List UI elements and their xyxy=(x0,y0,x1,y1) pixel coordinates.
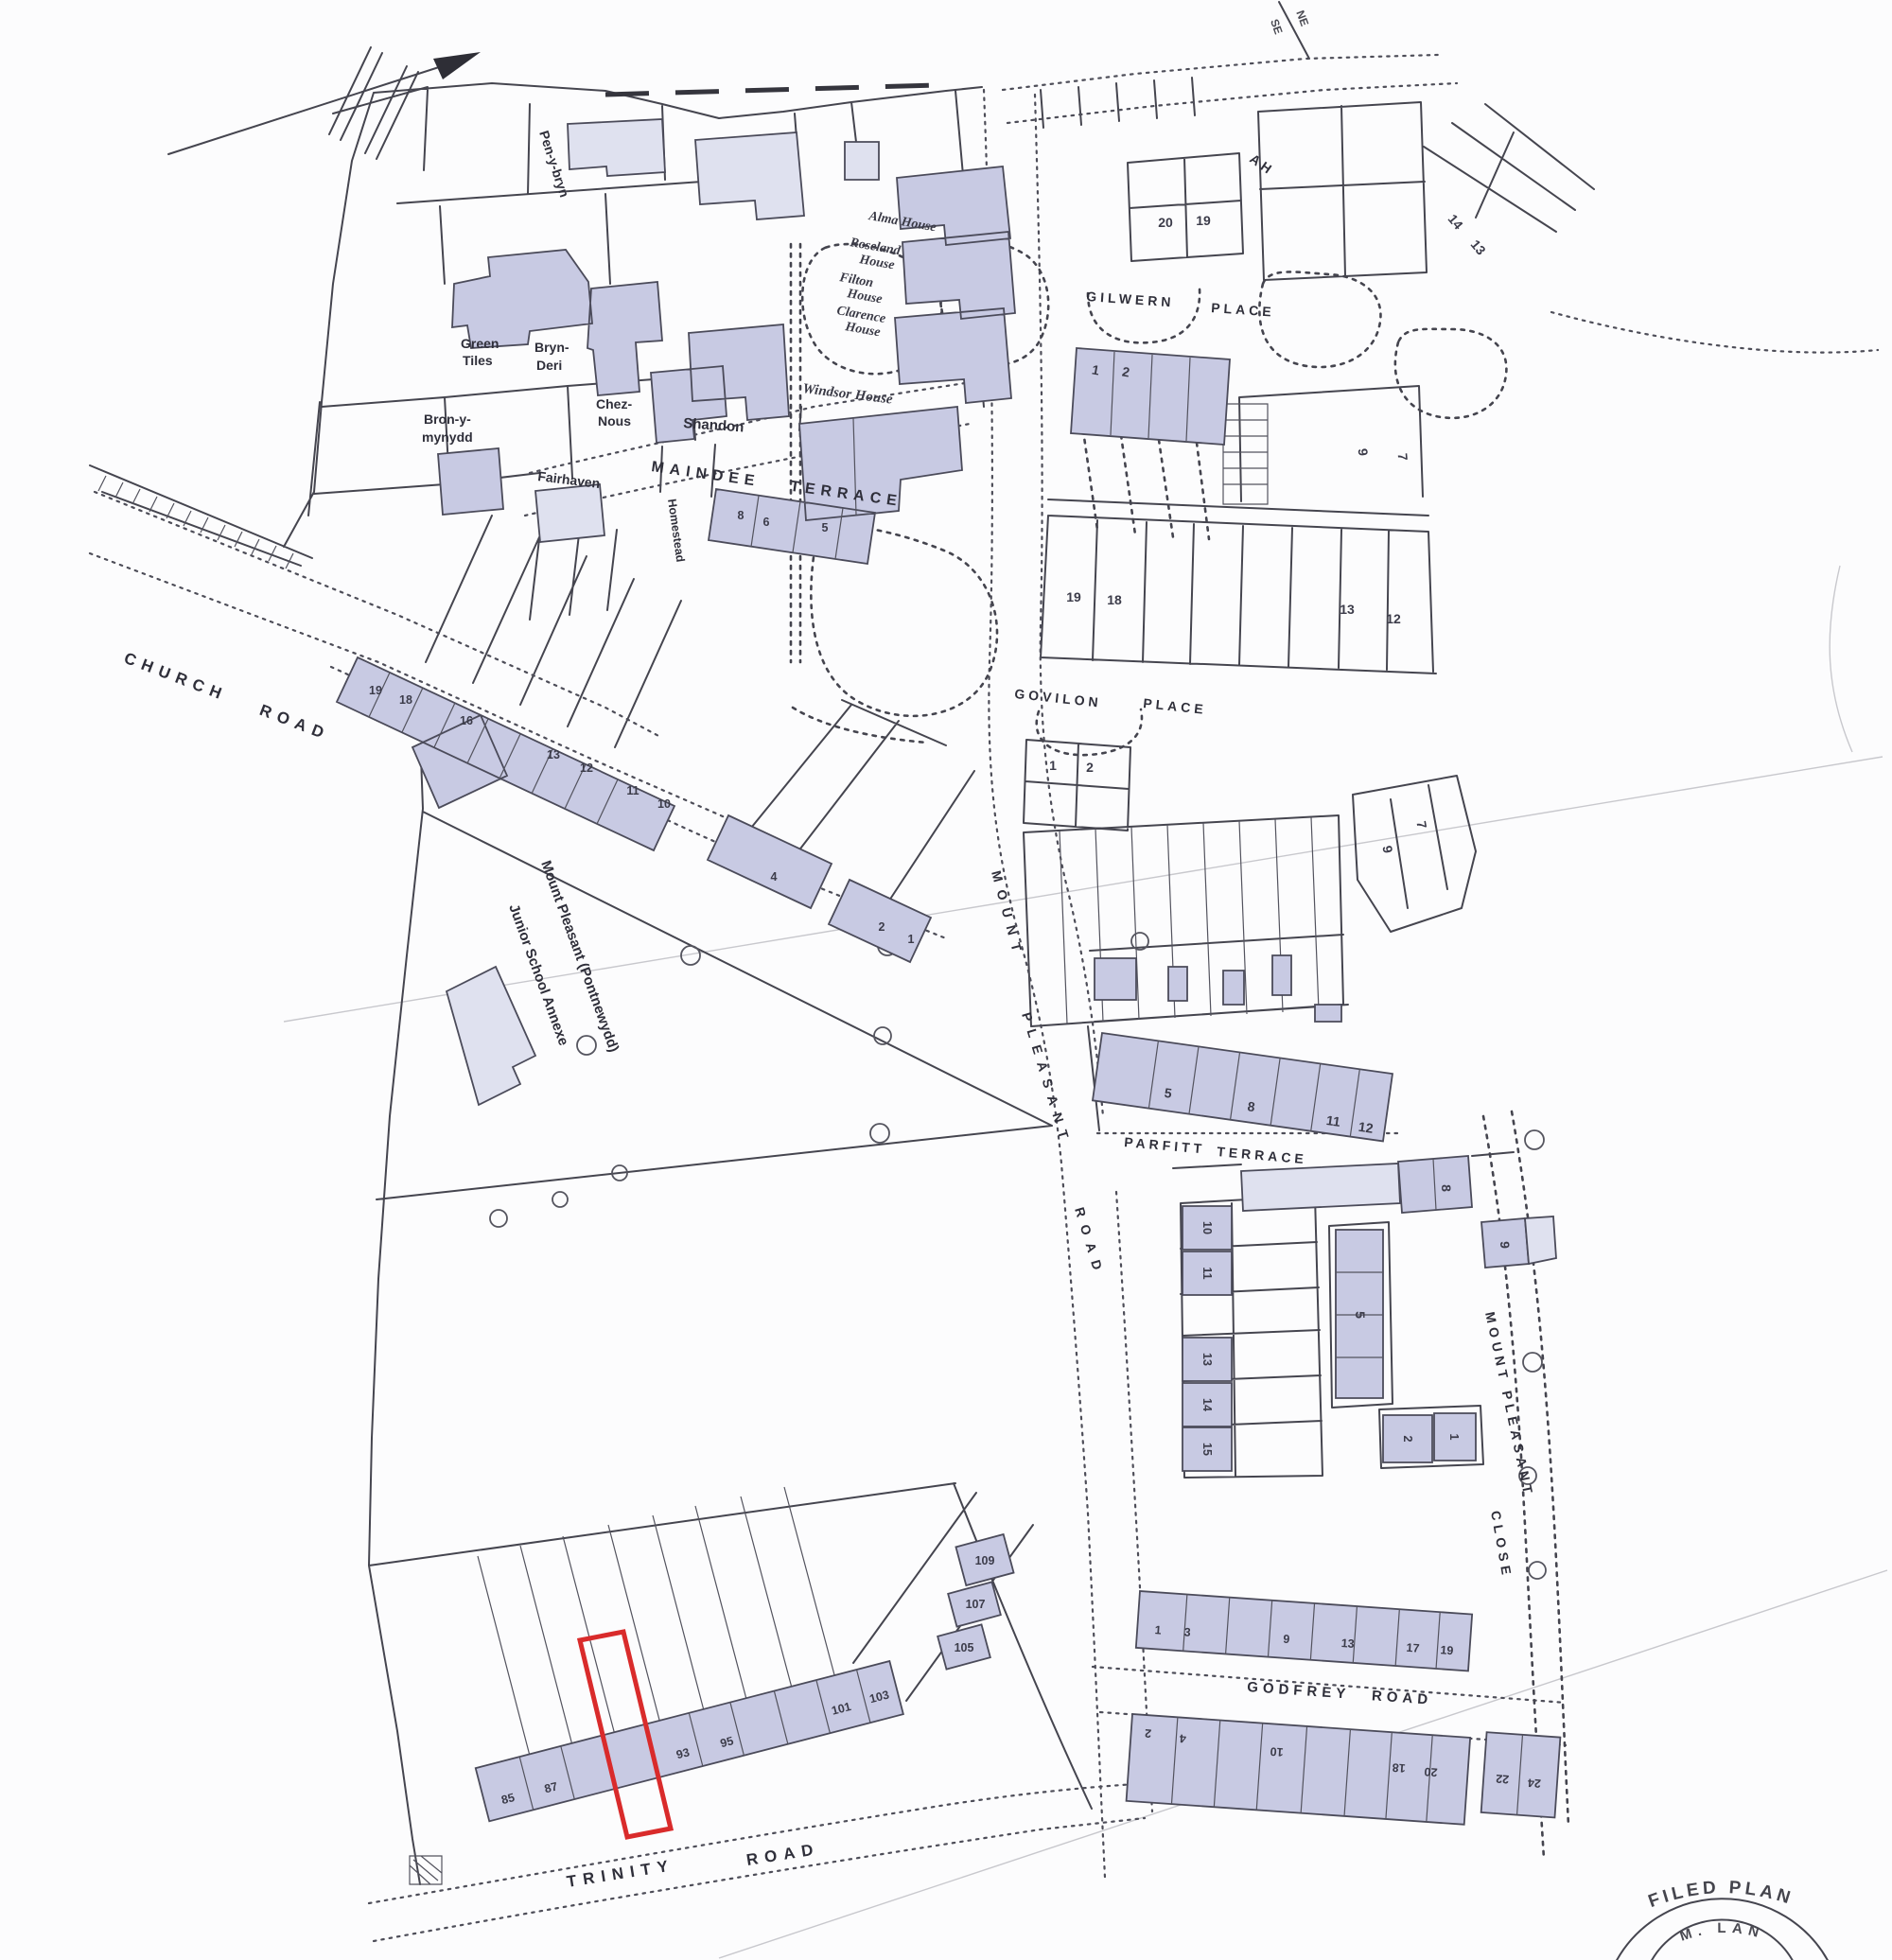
filed-plan-stamp: FILED PLAN xyxy=(1646,1878,1796,1912)
street-label-parfitt: PARFITT xyxy=(1124,1134,1206,1156)
plot-number: 107 xyxy=(966,1598,986,1611)
street-label-gilwern-place: PLACE xyxy=(1211,300,1275,320)
plot-number: 12 xyxy=(580,761,593,775)
parfitt-terrace-block: 5 8 11 12 xyxy=(1093,1033,1393,1141)
registry-stamp-text: M. LAN xyxy=(1678,1920,1766,1945)
plot-number: 109 xyxy=(975,1554,995,1567)
house-label-pen-y-bryn: Pen-y-bryn xyxy=(536,129,572,199)
plot-number: 6 xyxy=(763,516,770,529)
plot-number: 19 xyxy=(369,684,382,697)
map-svg: SE NE 5 8 11 12 1 3 xyxy=(0,0,1892,1960)
street-label-govilon: GOVILON xyxy=(1014,686,1103,710)
plot-number: 9 xyxy=(1356,447,1372,456)
plot-number: 9 xyxy=(1283,1633,1290,1646)
plot-number: 13 xyxy=(1340,1636,1355,1651)
garage-ladder-block xyxy=(1223,404,1268,504)
plot-number: 12 xyxy=(1358,1119,1375,1136)
plot-number: 11 xyxy=(1325,1112,1341,1129)
plot-number: 12 xyxy=(1386,611,1401,626)
house-label-bryn: Bryn- xyxy=(534,340,569,355)
plot-number: 8 xyxy=(738,509,745,522)
trinity-detached-houses: 105 107 109 xyxy=(937,1534,1013,1670)
plot-number: 19 xyxy=(1066,589,1081,604)
plot-number: 1 xyxy=(1154,1623,1162,1636)
plot-number: 2 xyxy=(1145,1726,1152,1740)
plot-number: 13 xyxy=(1468,236,1489,257)
plot-number: 20 xyxy=(1424,1765,1438,1779)
filed-plan-stamp-text: FILED PLAN xyxy=(1646,1878,1796,1912)
sheet-corner-marker: SE NE xyxy=(1268,2,1311,59)
plot-number: 4 xyxy=(771,870,778,884)
plot-number: 10 xyxy=(657,797,671,811)
registry-stamp: M. LAN xyxy=(1678,1920,1766,1945)
street-label-mpc: MOUNT PLEASANT xyxy=(1482,1310,1536,1499)
house-label-deri: Deri xyxy=(536,358,562,373)
plot-number: 13 xyxy=(547,748,560,761)
plot-number: 13 xyxy=(1200,1353,1214,1366)
plot-number: 10 xyxy=(1270,1744,1284,1759)
plot-number: 5 xyxy=(1353,1311,1368,1319)
plot-number: 5 xyxy=(822,521,829,534)
plot-number: 13 xyxy=(1340,602,1355,617)
plot-number: 19 xyxy=(1440,1643,1454,1657)
house-label-windsor: Windsor House xyxy=(802,381,894,408)
plot-number: 22 xyxy=(1496,1772,1510,1786)
plot-number: 105 xyxy=(955,1641,974,1654)
godfrey-north-terrace: 1 3 9 13 17 19 xyxy=(1136,1591,1472,1671)
street-label-mpc-close: CLOSE xyxy=(1488,1510,1515,1581)
plot-number: 15 xyxy=(1200,1443,1214,1456)
street-label-church-road: CHURCH ROAD xyxy=(122,649,333,744)
plot-number: 11 xyxy=(1200,1267,1214,1279)
land-registry-stamp: FILED PLAN M. LAN xyxy=(1613,1878,1831,1960)
plot-number: 19 xyxy=(1196,213,1211,228)
plot-number: 2 xyxy=(879,920,885,934)
street-label-mpr-mount: MOUNT xyxy=(989,869,1026,961)
plot-number: 1 xyxy=(908,933,915,946)
plot-number: 24 xyxy=(1527,1776,1541,1790)
plot-number: 3 xyxy=(1183,1625,1191,1638)
house-label-bron: Bron-y- xyxy=(424,411,471,427)
plot-number: 20 xyxy=(1158,215,1173,230)
plot-number: 7 xyxy=(1395,452,1411,461)
plot-number: 1 xyxy=(1049,758,1057,773)
street-label-gilwern: GILWERN xyxy=(1086,289,1175,309)
plot-number: 8 xyxy=(1439,1184,1454,1192)
house-label-chez: Chez- xyxy=(596,396,632,411)
street-label-godfrey-road: GODFREY ROAD xyxy=(1247,1679,1433,1708)
plot-number: 9 xyxy=(1379,845,1395,855)
plot-number: 11 xyxy=(626,784,639,797)
plot-number: 18 xyxy=(1392,1760,1406,1775)
plot-number: 1 xyxy=(1447,1434,1461,1441)
street-label-partial: AH xyxy=(1247,150,1277,178)
house-label-mynydd: mynydd xyxy=(422,429,473,445)
corner-se-label: SE xyxy=(1268,17,1286,36)
plot-number: 10 xyxy=(1200,1221,1214,1234)
house-label-homestead: Homestead xyxy=(665,498,687,563)
plot-number: 18 xyxy=(399,693,412,707)
top-boundary-dashes xyxy=(605,85,937,95)
house-label-tiles: Tiles xyxy=(463,353,493,368)
house-label-nous: Nous xyxy=(598,413,631,429)
plot-number: 16 xyxy=(460,714,473,727)
godfrey-south-terrace: 2 4 10 18 20 22 24 xyxy=(1127,1707,1561,1830)
plot-number: 9 xyxy=(1498,1241,1513,1249)
street-label-trinity: TRINITY xyxy=(566,1856,676,1891)
street-label-govilon-place: PLACE xyxy=(1143,695,1208,717)
house-label-filton-house: House xyxy=(845,287,883,306)
plot-number: 17 xyxy=(1406,1641,1420,1655)
corner-ne-label: NE xyxy=(1293,9,1311,27)
plot-number: 2 xyxy=(1401,1436,1414,1443)
street-label-mpr-road: ROAD xyxy=(1072,1205,1108,1280)
street-label-parfitt-terrace: TERRACE xyxy=(1217,1144,1308,1166)
school-label: Mount Pleasant (Pontnewydd) Junior Schoo… xyxy=(505,859,622,1055)
filed-plan-map: SE NE 5 8 11 12 1 3 xyxy=(0,0,1892,1960)
trinity-terrace: 85 87 93 95 101 103 xyxy=(476,1661,903,1821)
north-arrow-icon xyxy=(168,47,481,159)
house-label-green: Green xyxy=(461,336,499,351)
plot-number: 14 xyxy=(1200,1398,1214,1411)
plot-number: 14 xyxy=(1445,211,1466,232)
plot-number: 7 xyxy=(1413,820,1429,831)
plot-number: 4 xyxy=(1179,1732,1186,1745)
plot-number: 18 xyxy=(1107,592,1122,607)
plot-number: 2 xyxy=(1086,760,1094,775)
